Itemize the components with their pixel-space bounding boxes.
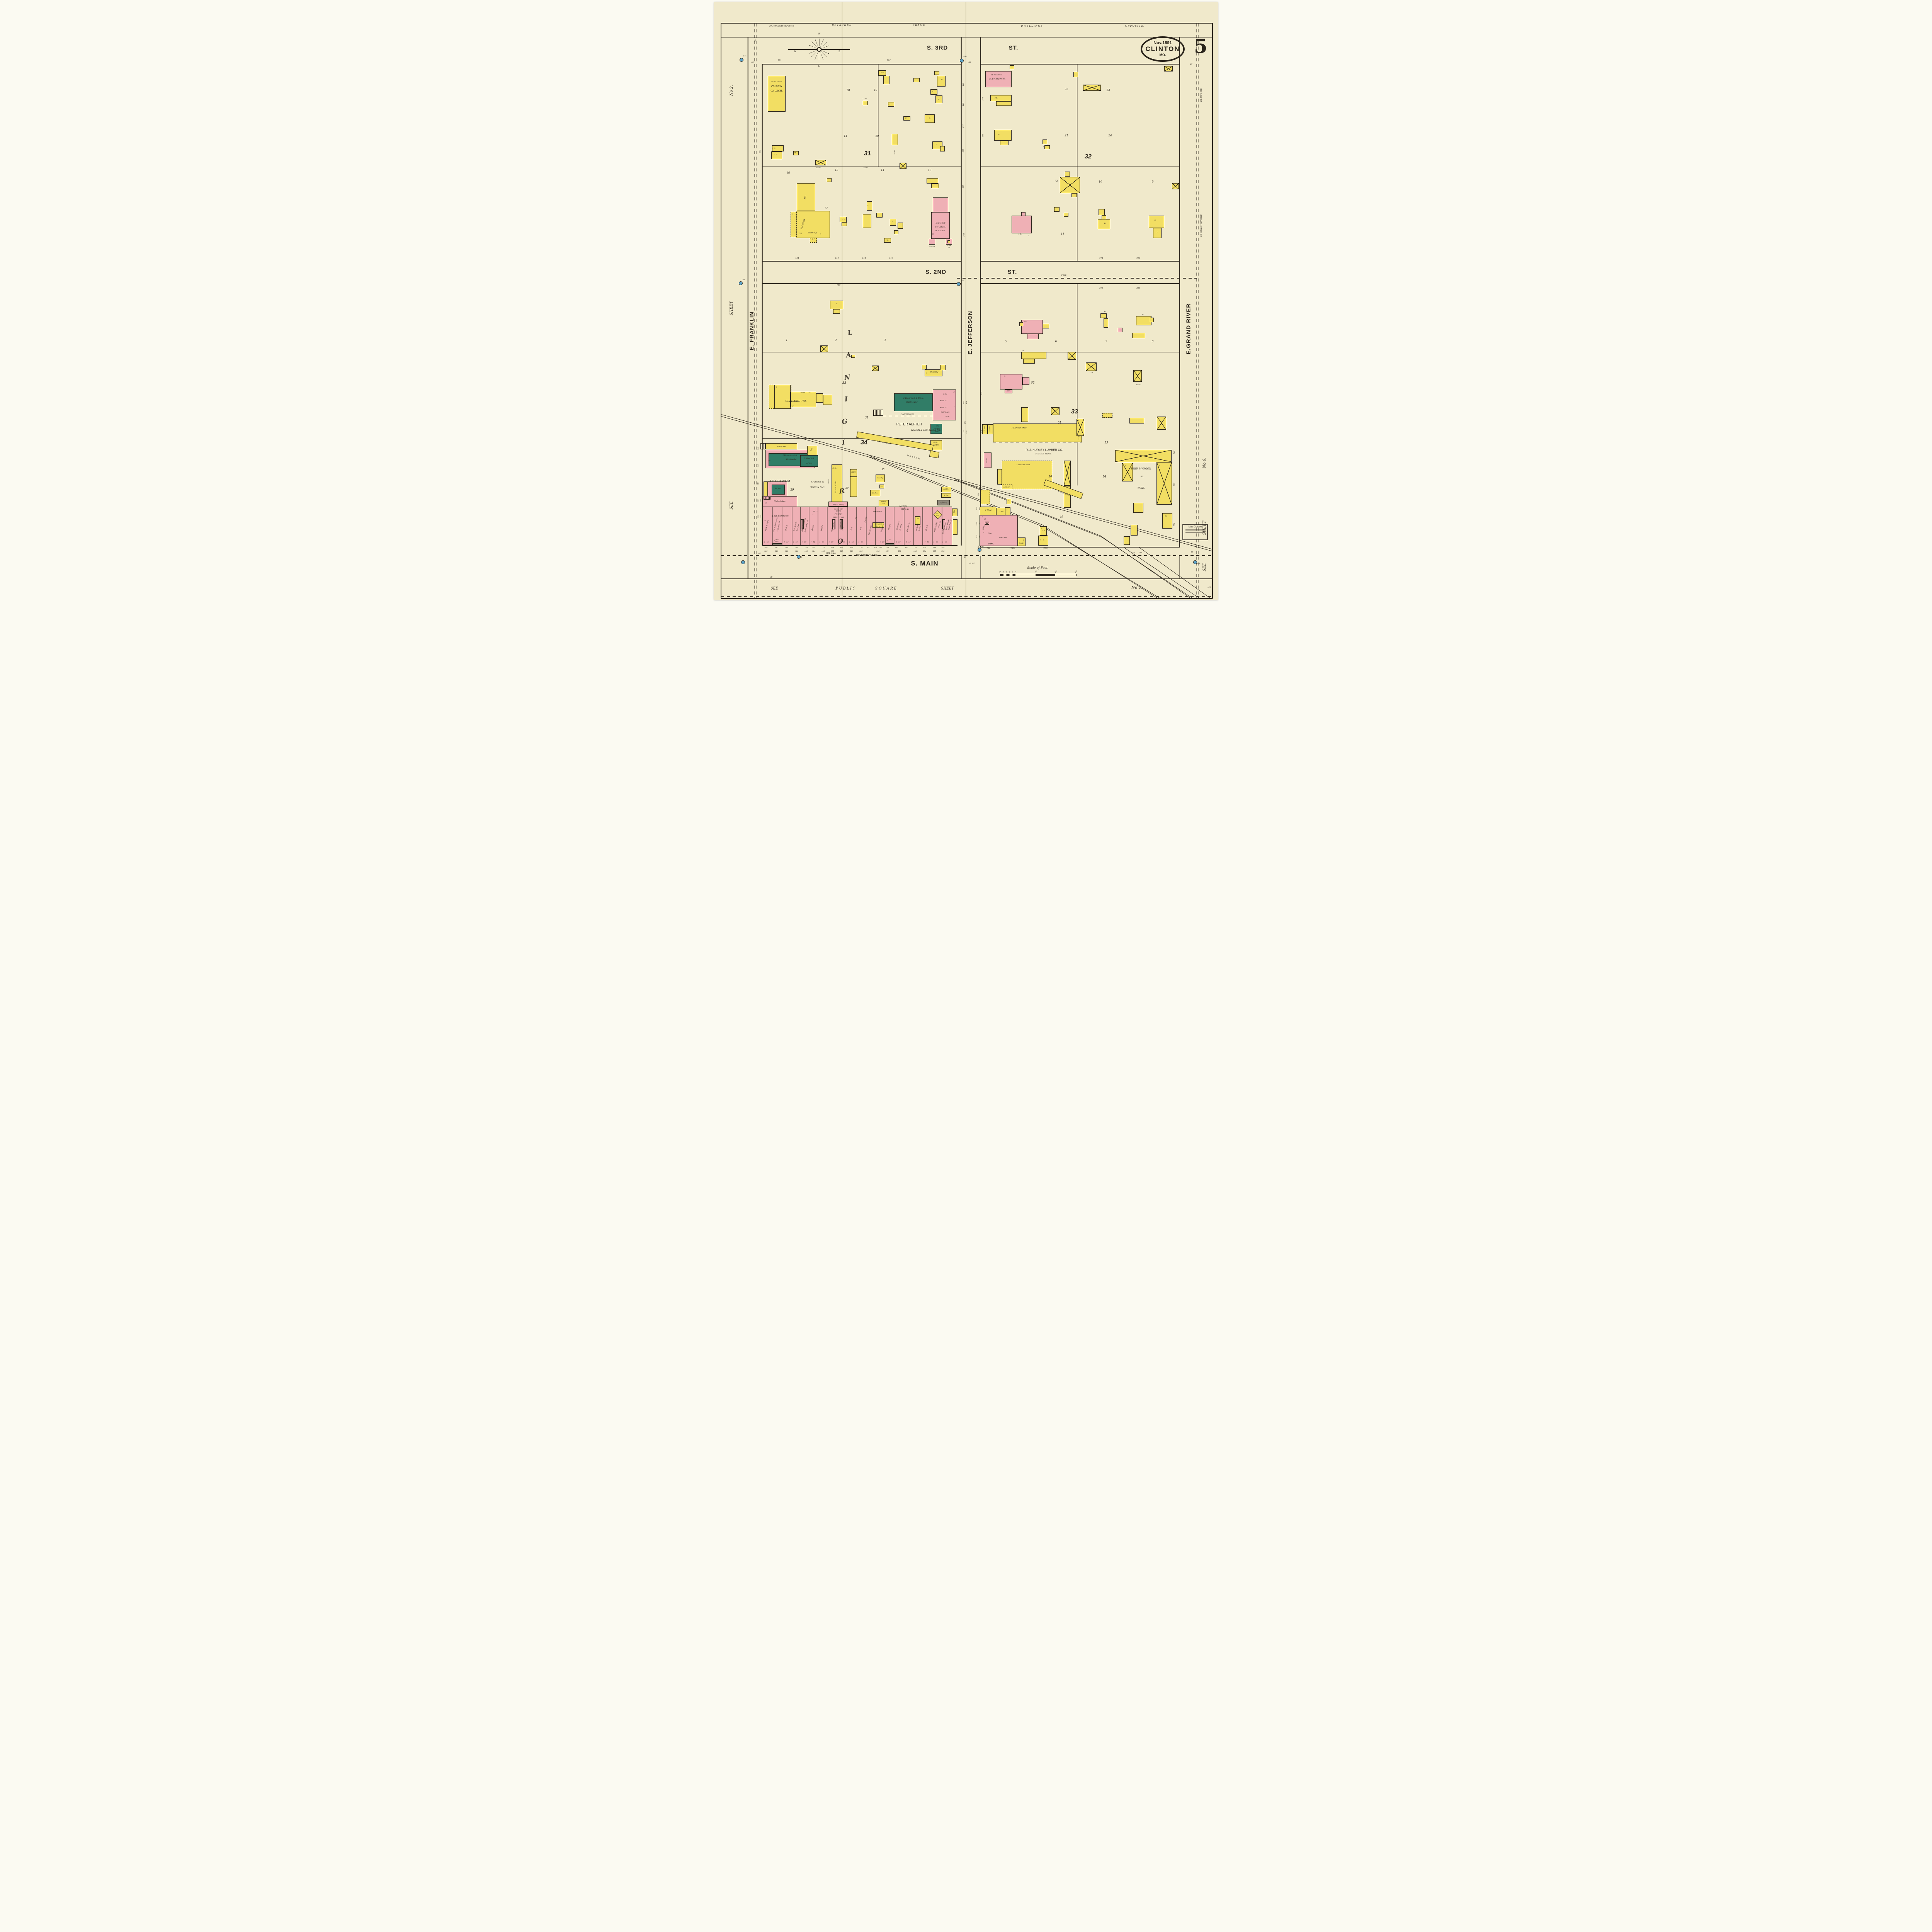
map-label: 136 xyxy=(941,551,944,552)
map-line xyxy=(721,23,721,599)
map-building xyxy=(1099,209,1105,215)
map-building xyxy=(1051,407,1060,415)
map-label: 30' xyxy=(932,233,934,235)
map-building xyxy=(933,197,948,212)
map-label: 1 OFF. xyxy=(1019,543,1024,544)
map-building xyxy=(810,238,817,243)
map-label: 118 xyxy=(889,258,893,260)
map-label: 102 xyxy=(775,547,778,549)
map-label: 1 xyxy=(811,541,811,543)
map-label: 2 D. xyxy=(842,219,845,220)
map-label: 207 xyxy=(963,185,965,189)
map-label: W xyxy=(818,33,820,35)
map-label: 1 Lumber Shed. xyxy=(1012,427,1027,429)
map-label: 114 xyxy=(831,547,834,549)
map-label: 106 xyxy=(795,547,798,549)
map-label: 28' xyxy=(936,541,938,543)
map-line xyxy=(721,23,1213,24)
map-label: 539 xyxy=(757,499,759,502)
map-label: WALL xyxy=(942,530,944,534)
map-label: BAPTIST xyxy=(936,222,946,224)
map-line xyxy=(981,556,981,579)
map-label: 211 xyxy=(963,124,965,128)
map-building xyxy=(762,507,952,546)
map-building xyxy=(883,76,889,84)
map-label: 2 Meat xyxy=(985,510,992,512)
store-party-wall xyxy=(904,507,905,546)
map-label: D. xyxy=(1142,314,1144,315)
map-building xyxy=(993,423,1082,442)
map-building xyxy=(856,432,934,451)
map-building xyxy=(1010,65,1014,69)
map-label: 15 xyxy=(835,169,838,172)
map-line xyxy=(1179,37,1180,547)
map-building xyxy=(800,455,818,467)
store-party-wall xyxy=(809,507,810,546)
map-label: 2 xyxy=(776,387,777,389)
map-label: D. xyxy=(998,134,1000,135)
store-party-wall xyxy=(866,507,867,546)
map-building xyxy=(863,101,868,105)
map-label: 30' xyxy=(796,541,798,543)
map-label: 14' TO EAVES. xyxy=(991,74,1002,76)
map-label: 117¾ xyxy=(1088,372,1093,373)
map-building xyxy=(922,365,927,369)
map-label: D. xyxy=(941,79,943,80)
map-label: x xyxy=(820,233,821,235)
map-label: E xyxy=(818,65,820,68)
map-label: A xyxy=(845,352,851,359)
map-building xyxy=(1022,377,1029,385)
map-label: 52 xyxy=(1031,382,1035,384)
map-building xyxy=(850,477,857,497)
map-label: D.H. xyxy=(742,279,745,281)
map-building xyxy=(823,395,832,405)
map-label: Upholst'g xyxy=(940,502,947,503)
map-building xyxy=(1115,450,1172,462)
map-label: 54 xyxy=(1103,476,1106,478)
map-label: L xyxy=(847,330,853,337)
map-label: S.P.1 xyxy=(936,425,939,427)
map-label: 28' xyxy=(852,541,854,543)
map-label: 104 xyxy=(795,258,799,260)
map-building xyxy=(1021,407,1028,422)
map-building xyxy=(816,393,823,403)
map-label: 35' xyxy=(767,541,769,543)
map-label: 132 xyxy=(898,551,901,552)
map-label: SHEET xyxy=(730,301,734,316)
map-label: 60' xyxy=(759,553,761,555)
map-label: 110½ xyxy=(816,167,821,168)
map-label: 18' TO EAVES. xyxy=(771,81,782,83)
map-label: D.H. xyxy=(1197,563,1200,564)
map-label: D. xyxy=(936,144,937,145)
map-label: G xyxy=(842,418,848,426)
map-label: 2 xyxy=(1043,146,1044,147)
map-building xyxy=(1104,318,1108,328)
map-building xyxy=(1156,462,1172,505)
map-line xyxy=(981,167,1180,167)
map-label: 1ST xyxy=(808,392,811,393)
map-label: 530 xyxy=(978,493,979,496)
map-building xyxy=(1083,85,1101,91)
store-party-wall xyxy=(801,507,801,546)
map-line xyxy=(721,578,1213,579)
map-label: 130 xyxy=(895,547,898,549)
map-label: GERHARDT HO. xyxy=(786,400,806,403)
map-label: Carriages xyxy=(941,412,949,414)
map-label: 10' xyxy=(908,541,911,543)
map-label: M. K. & T. R. R. xyxy=(907,455,920,460)
map-label: 28' xyxy=(768,460,770,462)
map-building xyxy=(1073,72,1078,77)
map-building xyxy=(1131,525,1138,536)
double-hydrant-icon xyxy=(739,281,743,285)
map-label: 538 xyxy=(757,515,759,518)
map-label: IR.CL.1 xyxy=(832,468,837,469)
map-label: OPEN xyxy=(801,392,805,393)
map-label: TOWER xyxy=(929,246,935,248)
map-building xyxy=(990,95,1012,101)
map-label: (202) xyxy=(1043,548,1048,550)
map-building xyxy=(1132,333,1145,338)
map-label: D.H. xyxy=(961,280,964,281)
map-label: 414 xyxy=(966,401,967,404)
map-label: BR. CHURCH OPPOSITE xyxy=(769,26,794,27)
map-label: SHEET xyxy=(941,587,954,591)
map-label: 30 xyxy=(1005,571,1008,573)
map-label: Cobbler xyxy=(943,488,949,490)
map-label: 2d xyxy=(984,519,986,520)
map-label: D. xyxy=(888,104,889,105)
map-label: 214 xyxy=(1099,258,1103,260)
map-building xyxy=(996,101,1012,106)
map-building xyxy=(913,78,920,82)
map-building xyxy=(833,309,840,314)
map-label: 2 xyxy=(849,541,850,543)
map-label: Scale of Feet. xyxy=(1027,566,1048,570)
map-building xyxy=(1065,172,1070,177)
map-label: 2 D. xyxy=(890,221,893,223)
paper-crease xyxy=(965,2,966,600)
map-label: Bank. xyxy=(988,543,994,545)
map-label: 214 xyxy=(983,97,985,101)
map-building xyxy=(1118,328,1122,332)
map-label: SHEET xyxy=(1203,521,1207,535)
map-building xyxy=(772,543,782,546)
map-label: SKY xyxy=(936,513,939,514)
map-label: 106 xyxy=(979,507,980,510)
map-label: WALL 1ST xyxy=(840,522,841,529)
map-label: R. J. HURLEY LUMBER CO. xyxy=(1026,448,1063,451)
map-label: 2 xyxy=(802,541,803,543)
map-label: 2 Wood Work & Bl.Sm. xyxy=(903,398,923,400)
map-label: 22 xyxy=(1065,88,1068,91)
map-building xyxy=(900,163,906,169)
map-building xyxy=(886,543,894,546)
map-label: SPIRE xyxy=(947,245,951,247)
map-label: 50 xyxy=(1035,570,1037,573)
map-label: 2 xyxy=(829,541,830,543)
map-label: 7 xyxy=(1105,340,1107,343)
map-label: 80' xyxy=(898,541,901,543)
map-label: 2 xyxy=(859,541,859,543)
map-label: 102 xyxy=(979,535,980,538)
map-label: OFF'S. 2e xyxy=(901,509,909,511)
map-label: D. xyxy=(867,205,869,206)
map-label: 208½ xyxy=(894,150,896,155)
map-label: 212 xyxy=(760,150,762,153)
map-label: 2 xyxy=(793,213,794,215)
map-label: PLATFORM 2ND xyxy=(901,413,914,415)
map-label: 2 Wood W'k xyxy=(804,458,815,460)
map-label: PRESB'N xyxy=(771,85,782,88)
map-label: SEE xyxy=(730,501,734,509)
map-label: 129 xyxy=(859,551,862,552)
store-party-wall xyxy=(913,507,914,546)
map-label: Laundry xyxy=(877,478,883,479)
map-building xyxy=(1054,207,1060,212)
map-line xyxy=(1077,64,1078,261)
map-label: 534 xyxy=(981,430,983,433)
map-label: AVERAGE $8,000. xyxy=(1035,454,1051,456)
map-building xyxy=(898,223,903,229)
map-label: 3 xyxy=(884,339,886,342)
map-label: 2 xyxy=(840,541,841,543)
map-label: 12 xyxy=(1054,180,1058,183)
map-label: D. xyxy=(836,303,838,304)
map-label: 2 xyxy=(1065,464,1066,465)
map-label: 117½ xyxy=(1136,384,1141,386)
map-label: 50 xyxy=(999,571,1001,573)
map-building xyxy=(894,230,898,234)
map-label: 29 xyxy=(791,489,794,492)
map-label: 2 Repository 1st xyxy=(782,455,797,457)
map-building xyxy=(953,519,957,535)
street-dashed-line xyxy=(756,23,757,599)
map-label: COUNTY xyxy=(899,506,907,508)
map-label: 2 xyxy=(764,498,765,500)
map-line xyxy=(721,37,1213,37)
map-label: 216 xyxy=(1132,553,1136,554)
map-building xyxy=(981,490,990,504)
map-label: 128 xyxy=(886,547,889,549)
map-label: 200 xyxy=(986,548,990,550)
map-building xyxy=(985,522,989,525)
map-label: 1 W.Ho. xyxy=(984,426,985,430)
map-label: 34 xyxy=(861,440,867,446)
map-building xyxy=(1122,463,1133,481)
map-line xyxy=(762,283,961,284)
map-line xyxy=(1212,23,1213,599)
map-label: 128 xyxy=(850,551,853,552)
map-building xyxy=(873,410,883,416)
map-building xyxy=(940,365,946,370)
map-label: 110 xyxy=(835,258,839,260)
map-label: ST. xyxy=(1008,269,1017,275)
map-label: D. xyxy=(1155,219,1156,221)
map-label: 14 xyxy=(844,135,847,138)
store-party-wall xyxy=(848,507,848,546)
map-label: CHURCH. xyxy=(935,226,946,228)
map-label: 1 xyxy=(1041,528,1042,529)
map-label: 114½ xyxy=(863,167,868,168)
map-label: Rm xyxy=(883,503,885,505)
map-label: 50 xyxy=(1049,476,1052,478)
map-label: 118 xyxy=(850,547,853,549)
map-building xyxy=(764,481,768,497)
map-label: 542 xyxy=(757,447,759,450)
map-building xyxy=(863,214,871,228)
map-building xyxy=(1133,503,1143,513)
map-label: 413 xyxy=(964,421,966,424)
map-label: Lumb. 3' xyxy=(1003,486,1010,488)
map-label: 2 xyxy=(982,516,983,518)
store-party-wall xyxy=(827,507,828,546)
map-label: 8 xyxy=(1152,340,1153,343)
map-label: 528 xyxy=(976,522,978,526)
map-building xyxy=(1068,352,1076,360)
street-dashed-line xyxy=(1198,23,1199,599)
map-label: 541 xyxy=(757,464,759,467)
double-hydrant-icon xyxy=(741,560,745,564)
map-label: 140 xyxy=(941,547,944,549)
map-line xyxy=(981,283,1180,284)
map-label: FR. DW'G OPP. xyxy=(1201,88,1203,102)
map-label: D.H. xyxy=(842,555,845,557)
map-label: 28' xyxy=(945,541,947,543)
map-label: 1 xyxy=(1125,465,1126,467)
map-building xyxy=(1157,417,1166,430)
map-label: 17 xyxy=(825,207,828,210)
map-label: WAGON FAC. xyxy=(810,486,825,489)
street-dashed-line xyxy=(721,596,1213,597)
map-label: 10 xyxy=(1099,181,1102,184)
map-label: HECKLER HOUSE. xyxy=(856,554,878,557)
map-building xyxy=(876,213,883,218)
map-label: 150 xyxy=(1075,570,1078,573)
double-hydrant-icon xyxy=(1193,560,1197,564)
map-label: 527 xyxy=(976,535,978,538)
map-label: S.P. xyxy=(1043,530,1045,532)
map-building xyxy=(1102,215,1106,219)
map-label: 53 xyxy=(1105,442,1108,444)
sheet-number: 5 xyxy=(1194,35,1207,58)
map-label: F R A M E xyxy=(913,24,925,27)
map-label: PETER ALFTER xyxy=(896,423,922,426)
map-label: 123 xyxy=(804,551,808,552)
map-label: S Q U A R E. xyxy=(875,587,898,591)
map-label: 63. xyxy=(1141,476,1144,478)
map-label: 32 xyxy=(1085,154,1092,160)
map-label: 16' TO EAVES. xyxy=(935,230,946,232)
map-label: 124 xyxy=(874,547,877,549)
map-label: Dining R'm. xyxy=(873,511,883,512)
map-label: 30' xyxy=(804,541,806,543)
map-label: 1 & 2a xyxy=(876,526,881,527)
map-label: 138 xyxy=(933,547,936,549)
scale-bar xyxy=(1000,574,1077,576)
map-label: 2 xyxy=(1028,235,1029,236)
map-label: 209 xyxy=(963,149,965,153)
map-label: D.2d xyxy=(943,393,947,395)
map-label: 2 xyxy=(820,541,820,543)
map-label: No 6. xyxy=(1203,457,1207,468)
store-party-wall xyxy=(894,507,895,546)
map-building xyxy=(892,134,898,145)
map-label: 120 xyxy=(859,547,862,549)
map-label: Stage & Scenery xyxy=(833,504,844,505)
map-line xyxy=(1180,556,1180,579)
map-label: 2 xyxy=(1078,420,1080,421)
map-label: 113 xyxy=(887,60,891,61)
map-label: 115 xyxy=(963,430,964,434)
map-label: 215 xyxy=(963,83,965,86)
map-label: ST. xyxy=(1009,45,1019,51)
map-label: 202 xyxy=(964,233,966,237)
map-label: 2½ xyxy=(799,233,802,235)
map-label: J.H.T. xyxy=(1207,587,1211,588)
map-label: SEE xyxy=(770,587,778,591)
map-label: Gro. xyxy=(988,533,992,535)
map-label: 540 xyxy=(757,482,759,485)
map-label: 100 xyxy=(1054,570,1058,573)
map-label: No 2. xyxy=(730,85,734,96)
map-label: 112 xyxy=(821,547,825,549)
map-label: 2 D. xyxy=(774,154,777,155)
map-label: E. JEFFERSON xyxy=(967,311,973,354)
map-label: 20 xyxy=(1009,571,1011,573)
map-label: 35 xyxy=(881,469,884,471)
map-line xyxy=(961,37,962,546)
map-building xyxy=(994,130,1012,141)
map-label: 2 xyxy=(942,541,943,543)
map-label: Kitchen. xyxy=(872,492,878,494)
street-dashed-line xyxy=(957,278,1197,279)
map-label: 36 xyxy=(920,476,923,478)
map-label: 112½ xyxy=(828,479,829,484)
map-label: Bl. Sm. xyxy=(775,488,781,490)
map-line xyxy=(1077,284,1078,485)
map-label: I xyxy=(842,439,845,446)
map-label: 1 xyxy=(813,514,813,515)
map-label: SHINGLES. xyxy=(1063,486,1072,488)
map-building xyxy=(931,184,939,188)
map-label: 206 xyxy=(1139,553,1143,554)
map-label: 11 xyxy=(1061,233,1065,236)
map-line xyxy=(762,64,763,546)
map-label: 40' xyxy=(1191,552,1194,554)
sanborn-map-sheet: Nov.1891 CLINTON MO. 5 Map Division 18' … xyxy=(714,2,1218,600)
map-label: Boarding xyxy=(808,232,816,234)
map-label: 121 xyxy=(785,551,788,552)
map-label: D W E L L I N G S xyxy=(1021,25,1042,27)
map-label: 1 OFF. xyxy=(986,458,988,463)
map-label: D E T A C H E D xyxy=(832,24,851,27)
map-label: D. xyxy=(1043,540,1045,542)
map-label: 135 xyxy=(933,551,936,552)
street-dashed-line xyxy=(1197,23,1197,599)
map-label: E. FRANKLIN xyxy=(749,311,754,350)
map-label: 16' xyxy=(786,541,789,543)
map-line xyxy=(981,261,1180,262)
map-label: 412 xyxy=(966,430,967,434)
map-label: 6 xyxy=(1055,340,1057,343)
map-label: 2 D. xyxy=(1022,350,1024,352)
double-hydrant-icon xyxy=(978,548,981,552)
map-state: MO. xyxy=(1142,53,1183,57)
map-label: 6" W.P. xyxy=(969,563,975,564)
